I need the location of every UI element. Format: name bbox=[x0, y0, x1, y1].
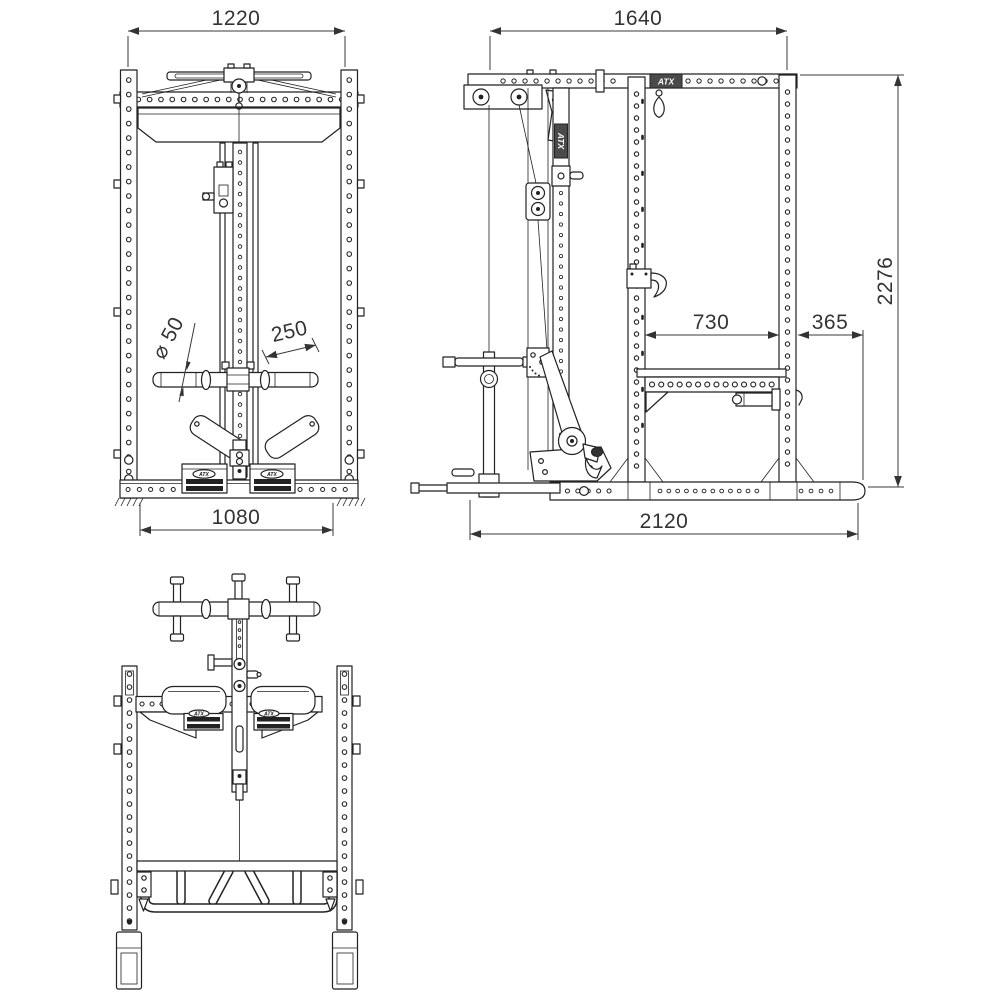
brand-logo: ATX bbox=[556, 132, 566, 151]
front-grip-length-dimension: 250 bbox=[262, 316, 319, 364]
cable bbox=[519, 105, 536, 183]
front-top-width-dimension: 1220 bbox=[128, 7, 345, 67]
brand-logo: ATX bbox=[193, 712, 204, 718]
bar-diameter-label: ⌀ 50 bbox=[148, 313, 189, 363]
side-bench-beam bbox=[637, 369, 802, 412]
side-rear-offset-dimension: 365 bbox=[798, 311, 863, 480]
front-right-upright bbox=[341, 70, 364, 498]
grip-ring bbox=[202, 371, 211, 390]
front-left-upright bbox=[114, 70, 137, 498]
side-bottom-depth-dimension: 2120 bbox=[470, 500, 858, 540]
top-foot-assembly bbox=[111, 861, 363, 925]
top-left-foot bbox=[117, 932, 142, 989]
side-inner-depth-dimension: 730 bbox=[645, 311, 779, 335]
side-view: ATX ATX bbox=[411, 7, 904, 540]
top-right-foot bbox=[333, 932, 358, 989]
cable bbox=[538, 220, 547, 350]
front-carriage bbox=[203, 162, 234, 213]
side-top-depth-label: 1640 bbox=[614, 7, 663, 30]
front-bar-diameter-callout: ⌀ 50 bbox=[148, 313, 195, 402]
front-right-pad bbox=[262, 412, 322, 461]
brand-logo: ATX bbox=[266, 472, 277, 478]
front-bottom-width-label: 1080 bbox=[212, 506, 261, 529]
side-rear-offset-label: 365 bbox=[812, 311, 849, 334]
top-right-base-plate: ATX bbox=[254, 710, 293, 730]
side-rear-upright bbox=[779, 75, 796, 482]
side-bottom-depth-label: 2120 bbox=[640, 510, 689, 533]
front-top-width-label: 1220 bbox=[212, 7, 261, 30]
front-left-base-plate: ATX bbox=[182, 464, 227, 493]
front-bottom-rail bbox=[115, 480, 365, 506]
front-bottom-width-dimension: 1080 bbox=[140, 503, 333, 536]
top-rear-crossbar bbox=[137, 861, 337, 871]
brand-logo: ATX bbox=[198, 472, 209, 478]
drawing-page: ⌀ 50 250 bbox=[0, 0, 1000, 1000]
side-carriage bbox=[526, 183, 550, 220]
front-view: ⌀ 50 250 bbox=[114, 7, 365, 536]
brand-logo: ATX bbox=[263, 712, 274, 718]
top-view: ATX ATX bbox=[111, 574, 363, 989]
brand-logo: ATX bbox=[657, 77, 676, 87]
top-center-column bbox=[208, 616, 261, 861]
front-lower-clamp bbox=[230, 440, 249, 479]
front-right-base-plate: ATX bbox=[250, 464, 295, 493]
carabiner-icon bbox=[654, 90, 665, 118]
side-top-pulley-block bbox=[464, 85, 542, 109]
side-height-label: 2276 bbox=[874, 257, 897, 306]
side-inner-depth-label: 730 bbox=[693, 311, 730, 334]
drawing-canvas: ⌀ 50 250 bbox=[0, 0, 1000, 1000]
grip-ring bbox=[261, 371, 270, 390]
top-left-base-plate: ATX bbox=[184, 710, 223, 730]
side-height-dimension: 2276 bbox=[800, 75, 904, 487]
top-right-pad bbox=[251, 687, 315, 715]
grip-length-label: 250 bbox=[269, 316, 310, 347]
side-top-depth-dimension: 1640 bbox=[490, 7, 787, 70]
